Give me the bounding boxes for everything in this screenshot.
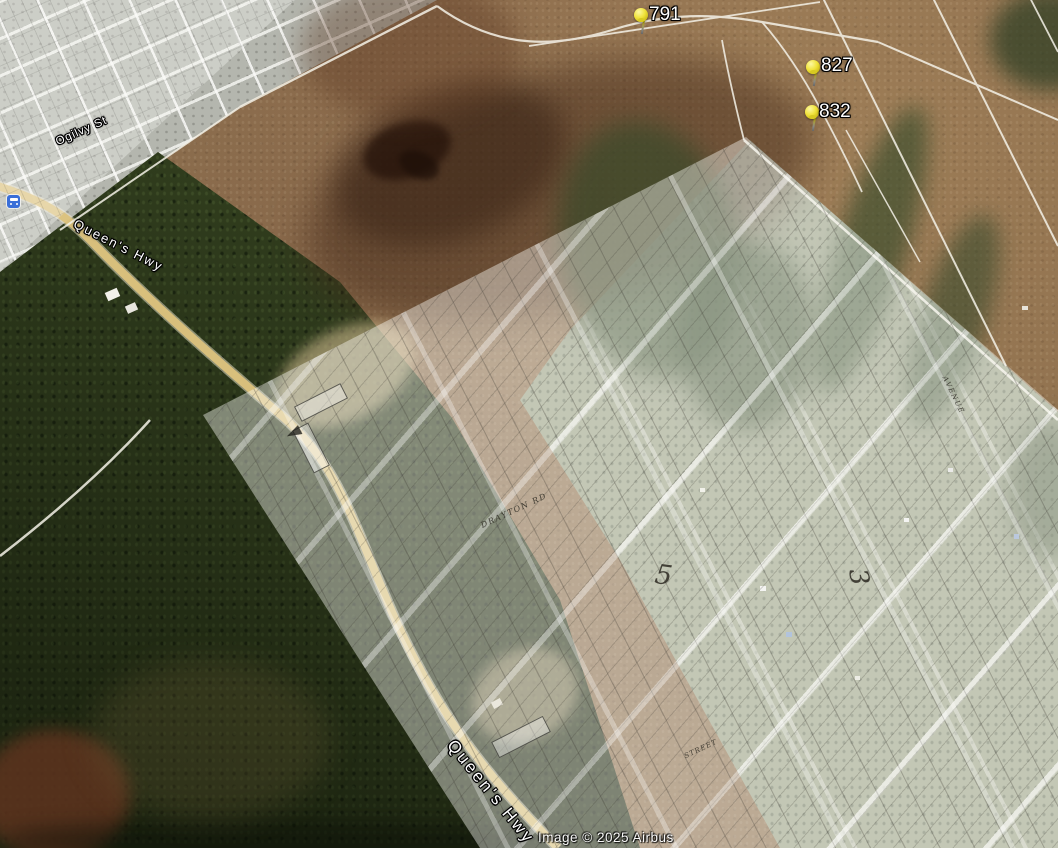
plat-title-block <box>491 716 551 758</box>
dirt-road <box>0 420 150 556</box>
placemark-label-832: 832 <box>819 101 851 123</box>
dirt-road <box>1028 0 1058 52</box>
pushpin-icon <box>634 8 650 38</box>
placemark-label-827: 827 <box>821 55 853 77</box>
map-viewport[interactable]: DRAYTON RD 5 3 STREET AVENUE Ogilvy St Q… <box>0 0 1058 848</box>
imagery-attribution: Image © 2025 Airbus <box>538 830 674 845</box>
dirt-road <box>878 42 1058 120</box>
placemark-label-791: 791 <box>649 4 681 26</box>
plat-title-block <box>294 383 348 422</box>
dirt-road <box>722 40 744 140</box>
building <box>1022 306 1028 310</box>
dirt-road <box>932 0 1058 246</box>
bus-stop-icon[interactable] <box>7 195 20 208</box>
pushpin-icon <box>806 60 822 90</box>
